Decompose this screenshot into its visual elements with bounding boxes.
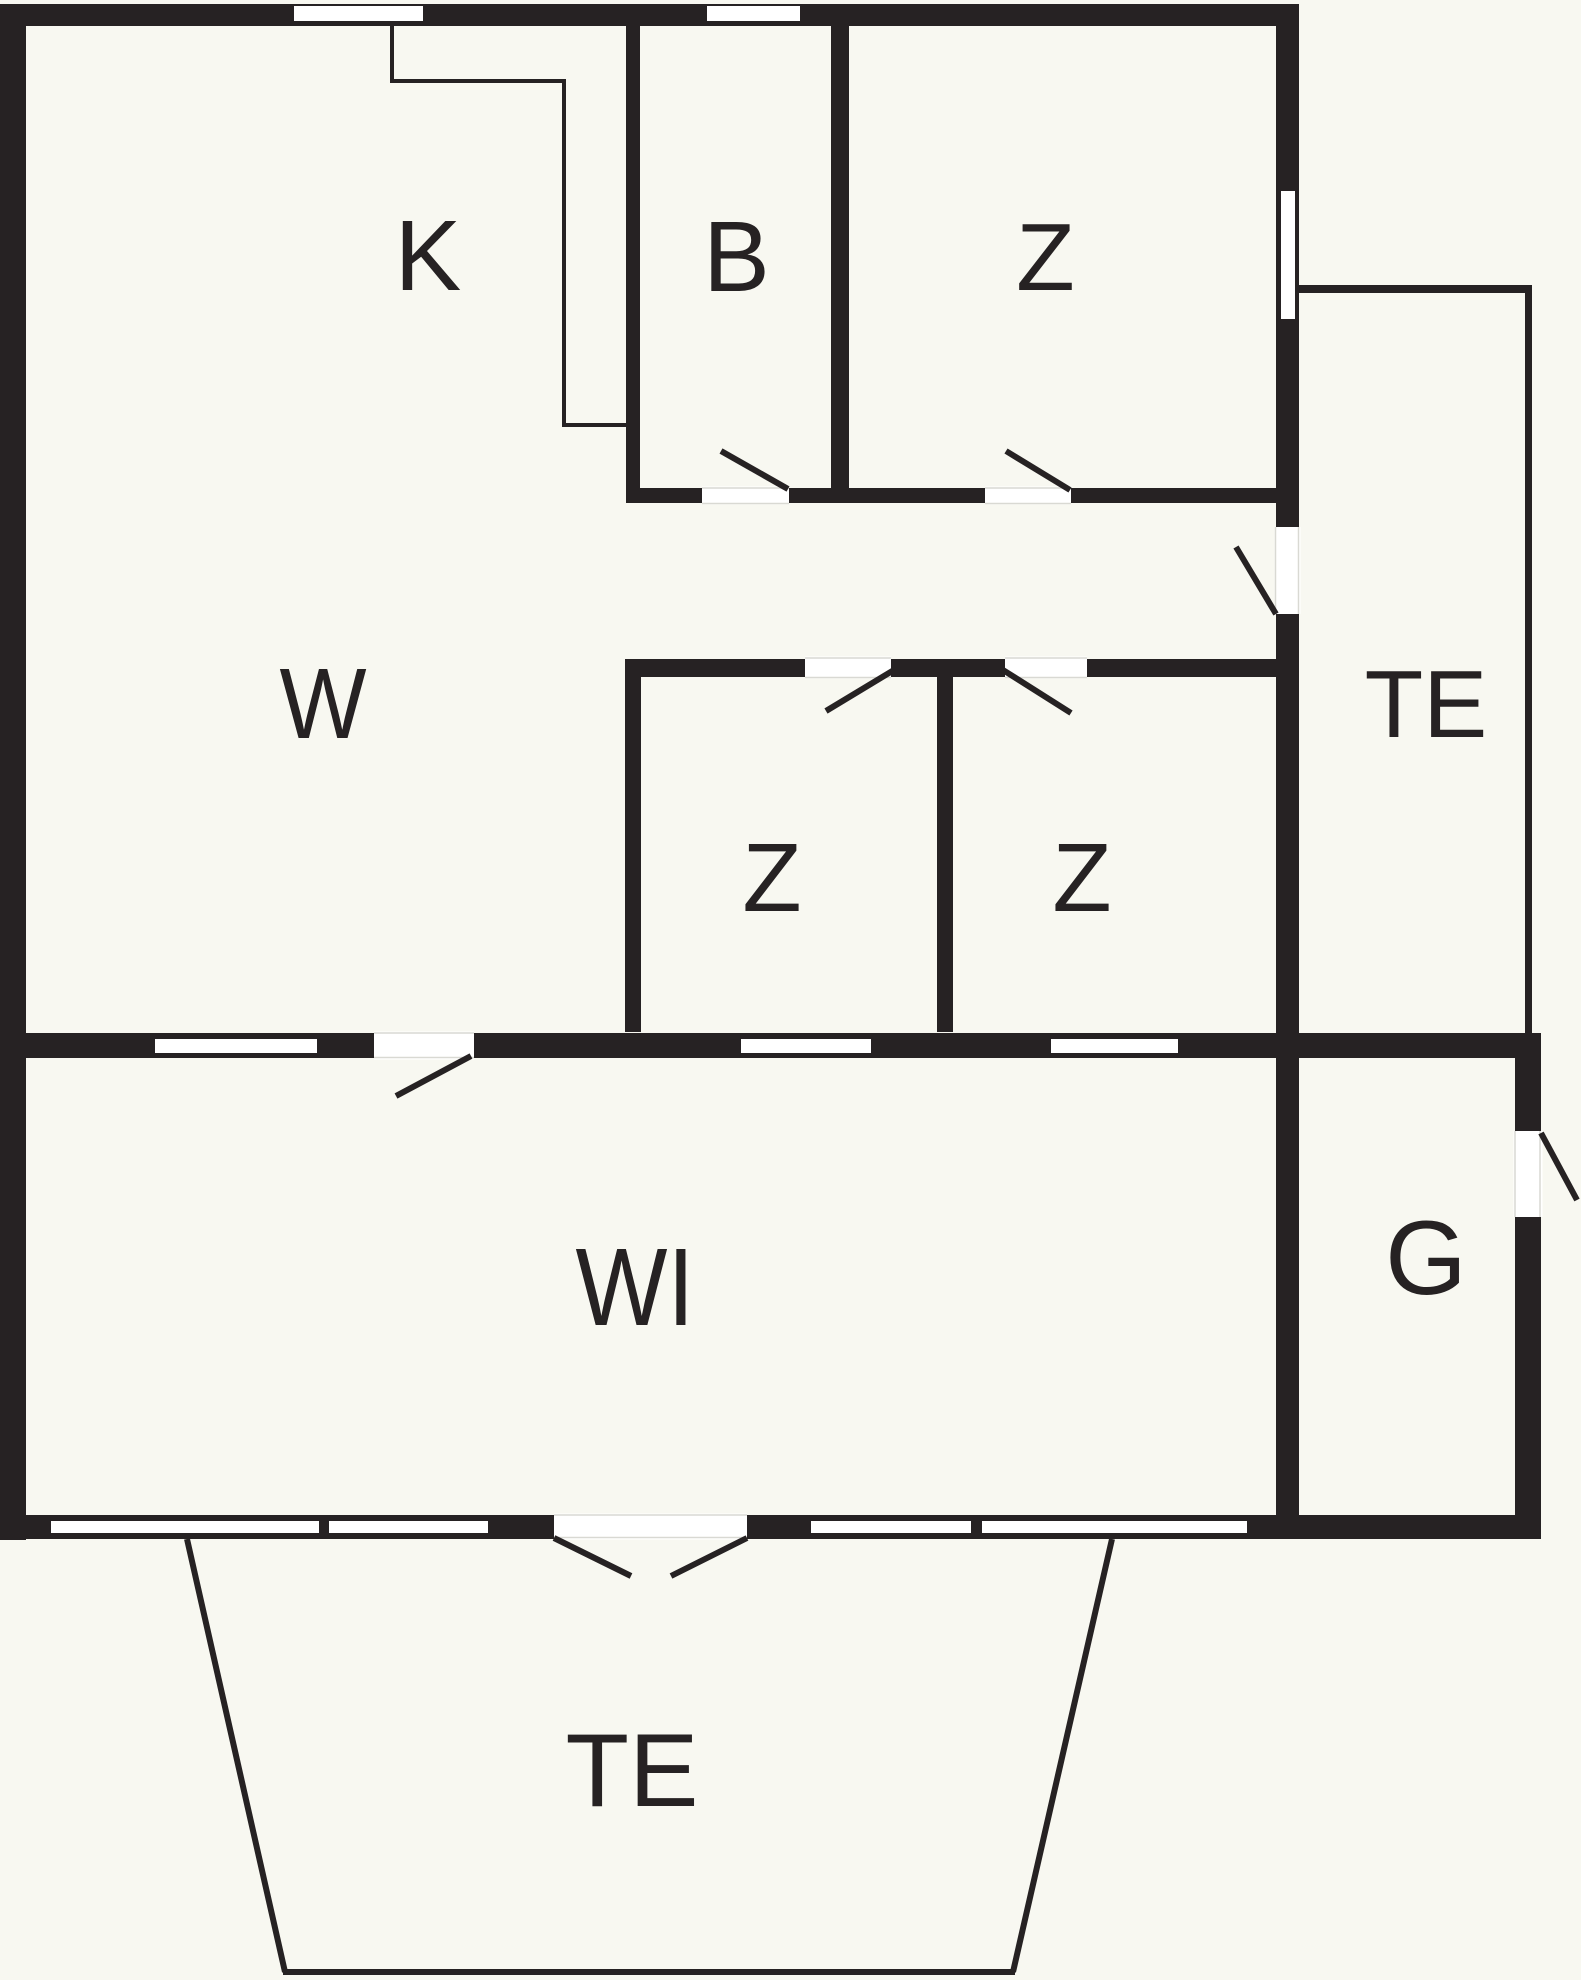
svg-text:WI: WI bbox=[576, 1226, 695, 1349]
svg-text:Z: Z bbox=[1052, 823, 1111, 932]
svg-text:W: W bbox=[280, 648, 368, 760]
svg-text:K: K bbox=[395, 200, 462, 312]
svg-text:B: B bbox=[703, 201, 770, 313]
svg-text:TE: TE bbox=[566, 1713, 699, 1829]
svg-text:Z: Z bbox=[742, 823, 801, 932]
svg-text:G: G bbox=[1385, 1200, 1467, 1317]
svg-text:TE: TE bbox=[1365, 651, 1488, 758]
svg-text:Z: Z bbox=[1016, 204, 1075, 311]
